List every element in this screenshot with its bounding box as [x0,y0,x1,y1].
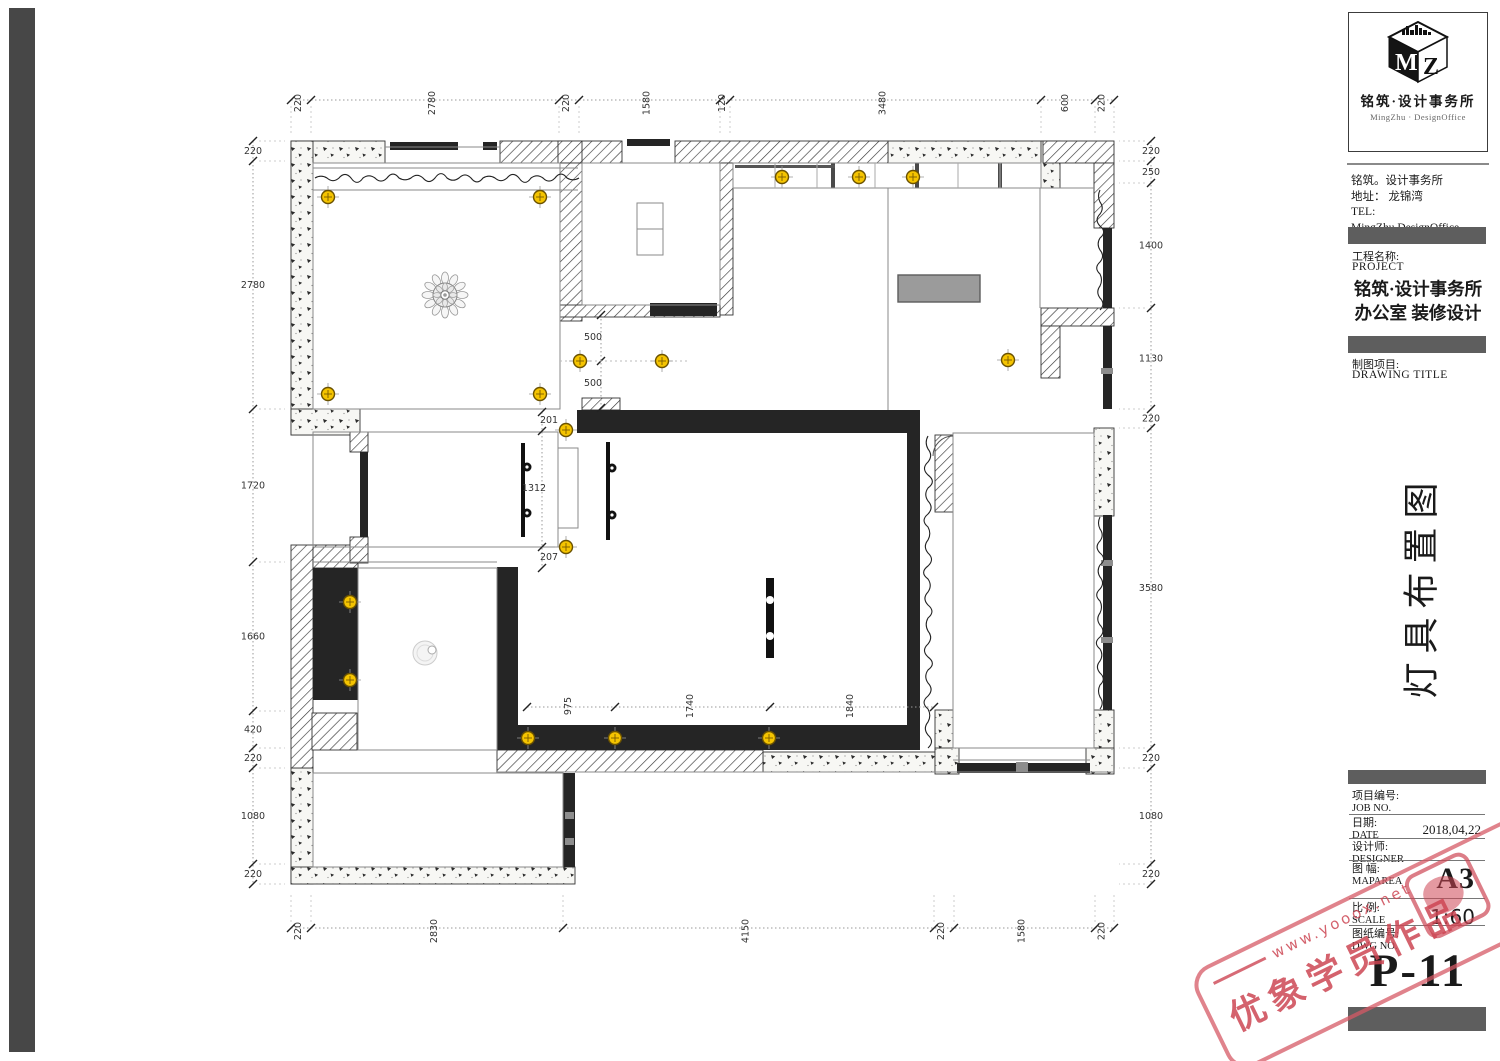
dimension-label: 220 [561,94,572,112]
dimensions [249,96,1155,932]
logo-letter-m: M [1395,50,1418,76]
dimension-label: 1080 [1139,811,1163,822]
dimension-label: 2780 [427,91,438,115]
ceiling-light [902,166,924,188]
mz-cube-logo-icon: M Z [1385,20,1451,84]
dimension-label: 220 [244,146,262,157]
drawing-title-vertical: 灯具布置图 [1347,468,1489,703]
ceiling-fan [413,641,437,665]
dimension-label: 1130 [1139,354,1163,365]
dimension-label: 220 [936,922,947,940]
dimension-label: 120 [717,94,728,112]
ceiling-light [771,166,793,188]
ceiling-light [317,186,339,208]
ceiling-panel-light [898,275,980,302]
ceiling-light [529,186,551,208]
drawing-label-en: DRAWING TITLE [1352,369,1448,381]
dimension-label: 975 [563,697,574,715]
company-name: 铭筑。设计事务所 [1351,174,1459,190]
logo-name-en: MingZhu · DesignOffice [1349,112,1487,122]
dimension-label: 220 [244,753,262,764]
ceiling-light [569,350,591,372]
ceiling-light [529,383,551,405]
dimension-label: 220 [1097,922,1108,940]
dimension-label: 220 [1097,94,1108,112]
section-bar [1348,336,1486,353]
dimension-label: 1660 [241,632,265,643]
dimension-label: 1720 [241,481,265,492]
dimension-label: 4150 [741,919,752,943]
dimension-label: 1400 [1139,241,1163,252]
project-label-en: PROJECT [1352,261,1404,273]
dimension-label: 220 [1142,146,1160,157]
dimension-label: 220 [1142,753,1160,764]
ceiling-light [848,166,870,188]
divider [1347,163,1489,165]
dimension-label: 2780 [241,280,265,291]
dimension-label: 201 [540,415,558,426]
ceiling-light [317,383,339,405]
dimension-label: 420 [244,725,262,736]
dimension-label: 3480 [878,91,889,115]
company-logo: M Z 铭筑·设计事务所 MingZhu · DesignOffice [1348,12,1488,152]
dimension-label: 220 [293,922,304,940]
dimension-label: 220 [1142,869,1160,880]
dimension-label: 1580 [642,91,653,115]
dimension-label: 3580 [1139,583,1163,594]
drawing-sheet: 2202780220158012034806002202202830415022… [0,0,1500,1061]
floor-plan-drawing: 2202780220158012034806002202202830415022… [0,0,1500,1061]
section-bar [1348,227,1486,244]
section-bar [1348,770,1486,784]
logo-letter-z: Z [1423,54,1439,80]
divider [1349,814,1485,815]
dimension-label: 1840 [845,694,856,718]
company-tel: TEL: [1351,205,1459,221]
track-light [606,442,617,540]
dimension-label: 1312 [522,483,546,494]
dimension-label: 220 [293,94,304,112]
ceiling-light [651,350,673,372]
dimension-label: 220 [244,869,262,880]
dimension-label: 207 [540,552,558,563]
table-row-jobno: 项目编号: JOB NO. [1352,790,1484,815]
ceiling-rosette [422,272,468,318]
track-light [766,578,774,658]
dimension-label: 1080 [241,811,265,822]
dimension-label: 500 [584,378,602,389]
dimension-label: 2830 [429,919,440,943]
project-name: 铭筑·设计事务所 办公室 装修设计 [1347,278,1489,325]
ceiling-light [997,349,1019,371]
dimension-label: 1740 [685,694,696,718]
dimension-label: 220 [1142,414,1160,425]
dimension-label: 1580 [1017,919,1028,943]
dimension-label: 250 [1142,167,1160,178]
company-address: 地址： 龙锦湾 [1351,190,1459,206]
dimension-label: 500 [584,332,602,343]
dimension-label: 600 [1060,94,1071,112]
logo-name-cn: 铭筑·设计事务所 [1349,90,1487,110]
